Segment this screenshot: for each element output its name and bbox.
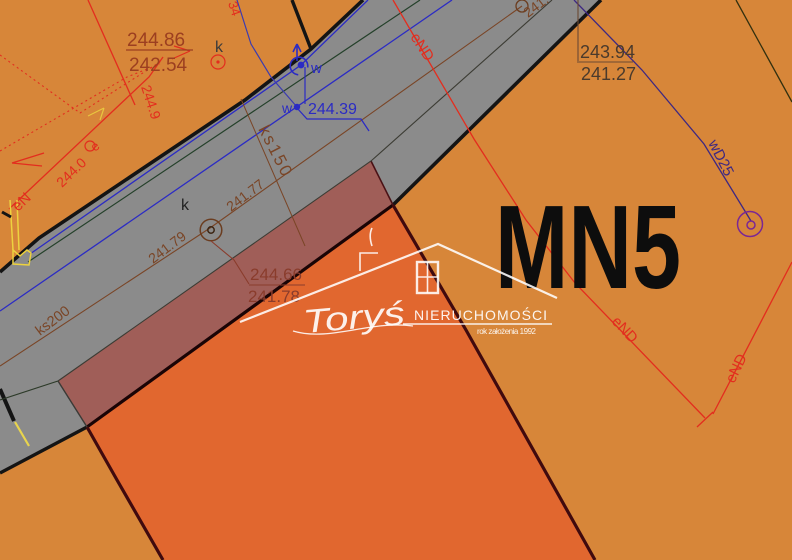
svg-text:241.27: 241.27: [581, 64, 636, 84]
svg-text:244.39: 244.39: [308, 101, 357, 118]
svg-text:244.66: 244.66: [250, 265, 302, 284]
svg-text:NIERUCHOMOŚCI: NIERUCHOMOŚCI: [414, 306, 549, 323]
svg-text:244.86: 244.86: [127, 30, 185, 51]
svg-text:243.94: 243.94: [580, 42, 635, 62]
svg-text:241.78: 241.78: [248, 287, 300, 306]
svg-text:MN5: MN5: [495, 181, 681, 314]
svg-text:w: w: [310, 60, 322, 77]
svg-text:w: w: [281, 100, 293, 116]
svg-text:k: k: [181, 197, 190, 214]
svg-text:242.54: 242.54: [129, 55, 188, 76]
svg-text:k: k: [215, 39, 224, 56]
svg-text:rok założenia 1992: rok założenia 1992: [477, 327, 537, 336]
